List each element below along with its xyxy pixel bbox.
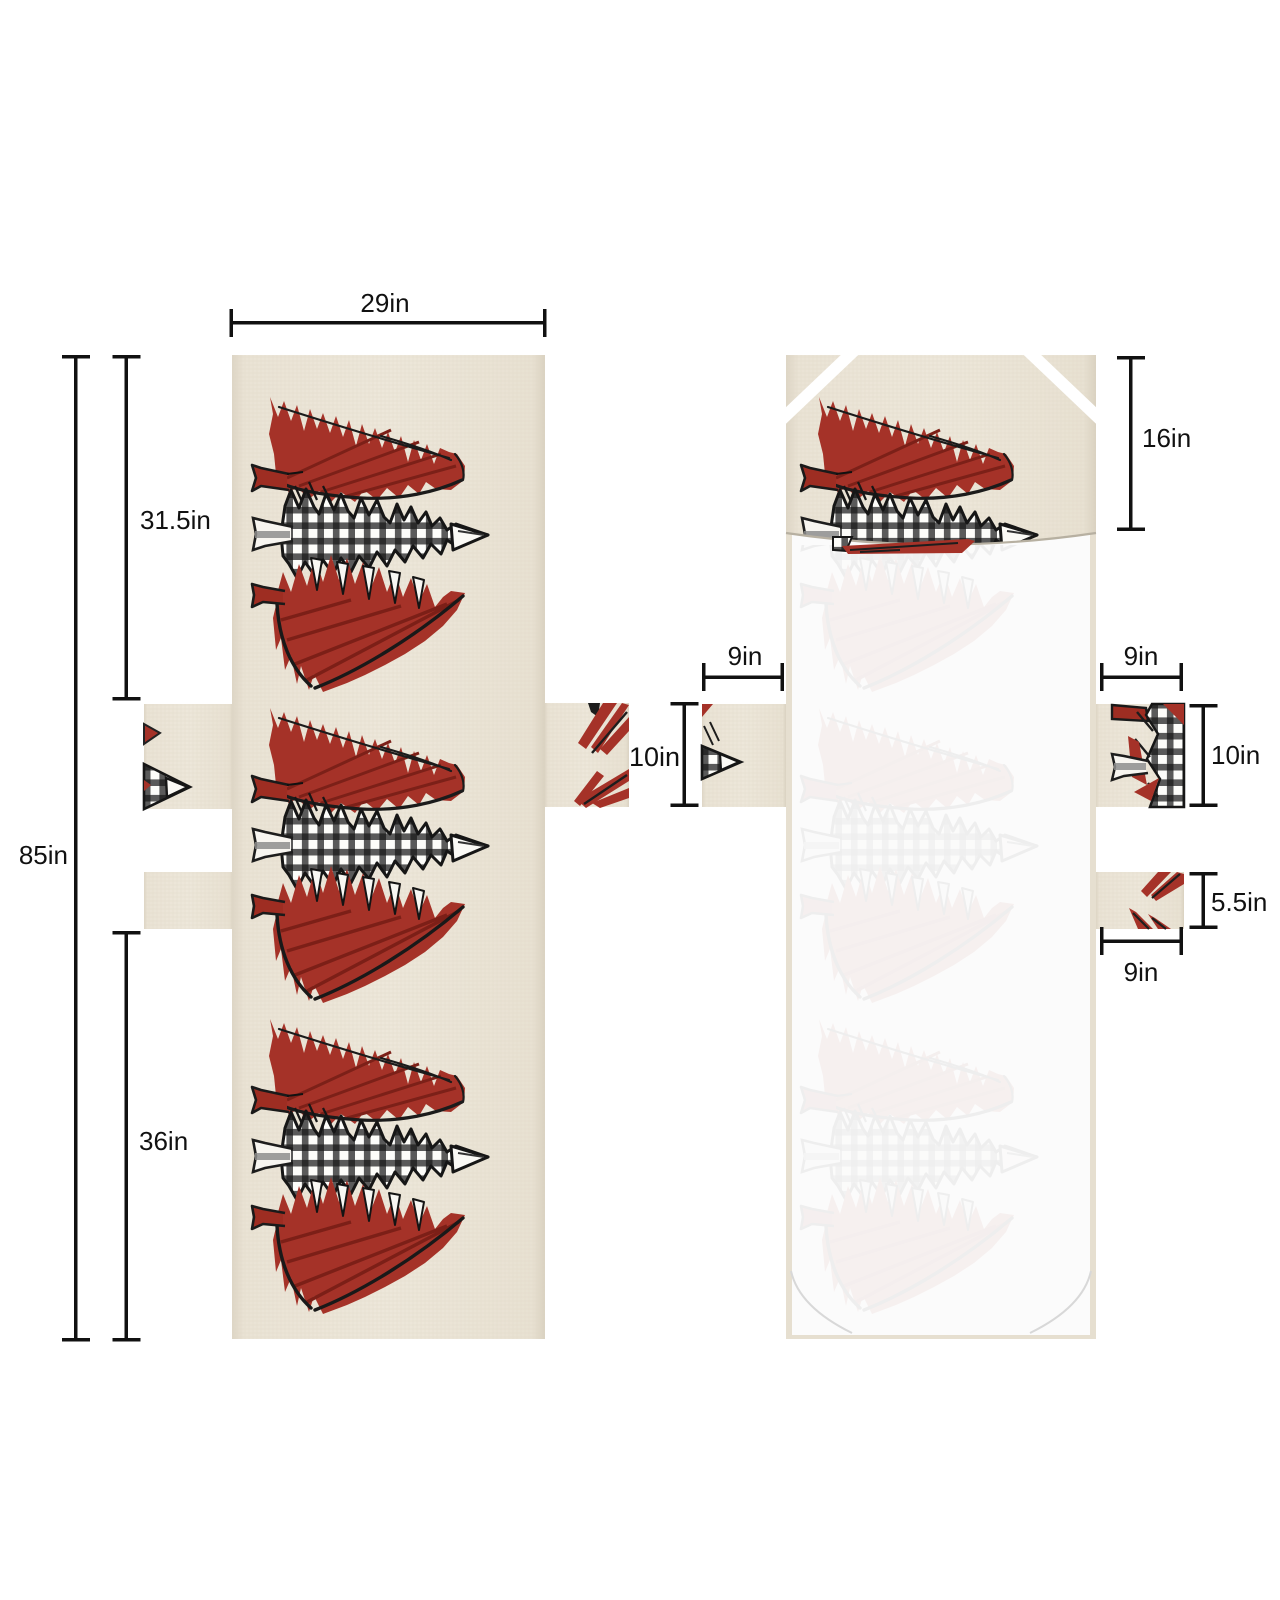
svg-text:29in: 29in [360,288,409,318]
svg-text:9in: 9in [728,641,763,671]
svg-text:10in: 10in [629,742,680,772]
svg-text:16in: 16in [1142,423,1191,453]
svg-text:36in: 36in [139,1126,188,1156]
svg-text:85in: 85in [19,840,68,870]
svg-text:9in: 9in [1124,641,1159,671]
svg-text:31.5in: 31.5in [140,505,211,535]
svg-text:9in: 9in [1124,957,1159,987]
svg-text:5.5in: 5.5in [1211,887,1267,917]
svg-text:10in: 10in [1211,740,1260,770]
